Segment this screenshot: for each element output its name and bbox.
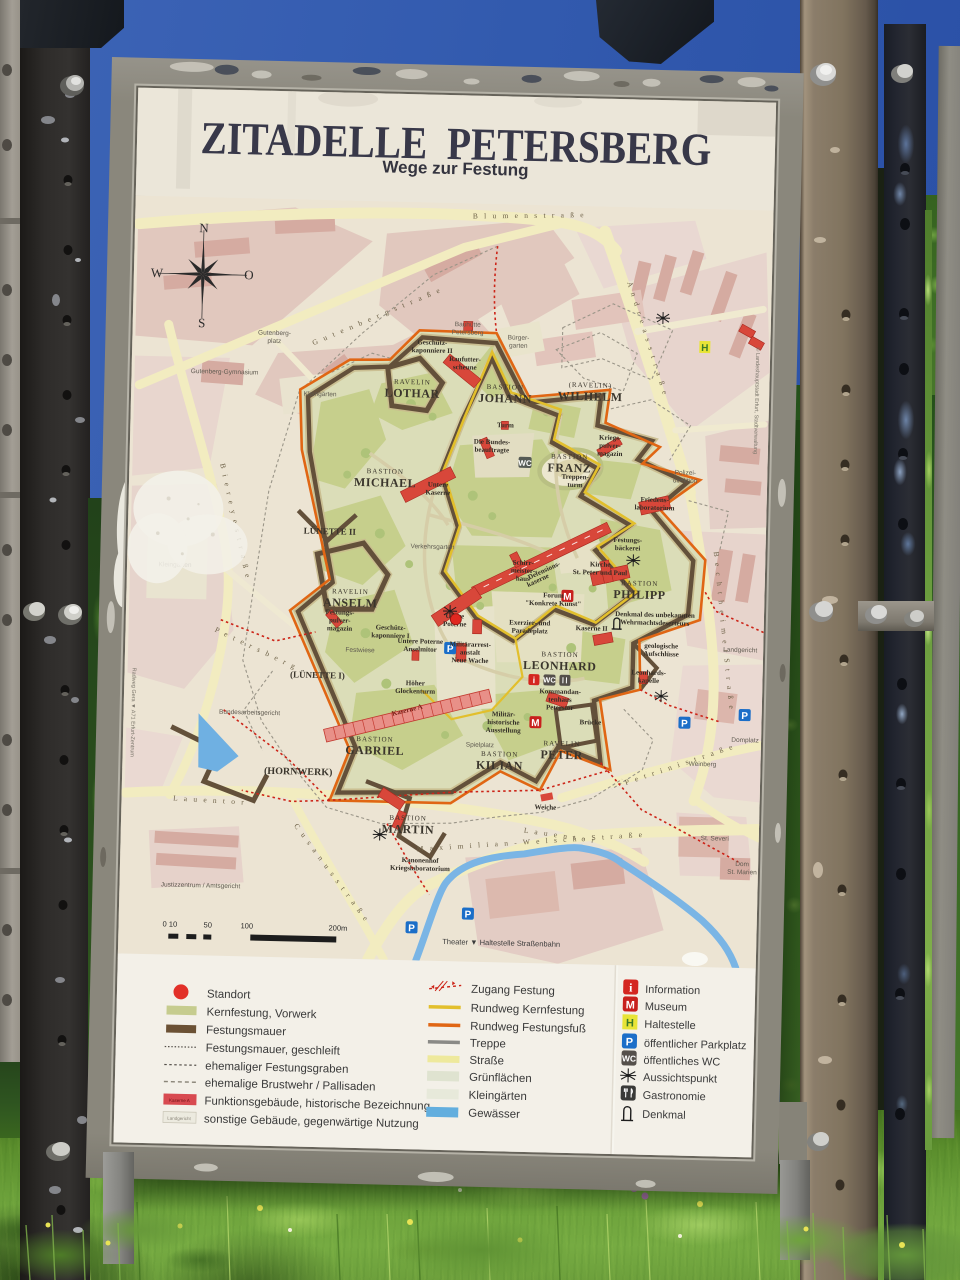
svg-text:Kaserne II: Kaserne II [576,624,609,633]
svg-text:garten: garten [509,342,528,349]
svg-text:Kleingärten: Kleingärten [304,391,337,399]
svg-text:Ausstellung: Ausstellung [486,726,522,735]
svg-text:WC: WC [543,675,556,684]
svg-text:Dom: Dom [735,861,749,868]
svg-text:WC: WC [518,459,532,468]
svg-text:Straße: Straße [469,1055,504,1068]
svg-text:öffentlicher Parkplatz: öffentlicher Parkplatz [644,1038,747,1052]
svg-text:M: M [531,718,540,729]
svg-text:Festungsmauer: Festungsmauer [206,1024,286,1038]
svg-text:ehemaliger Festungsgraben: ehemaliger Festungsgraben [205,1060,348,1075]
svg-text:LOTHAR: LOTHAR [384,386,439,401]
svg-text:P: P [681,719,688,730]
svg-text:KILIAN: KILIAN [476,758,523,773]
svg-text:Museum: Museum [645,1001,687,1014]
svg-text:Aufschlüsse: Aufschlüsse [643,650,679,659]
svg-text:St. Peter und Paul: St. Peter und Paul [573,568,628,577]
svg-text:MARTIN: MARTIN [381,822,434,837]
svg-text:Weinberg: Weinberg [689,761,717,769]
svg-text:Treppe: Treppe [470,1038,506,1051]
svg-text:Peterstor: Peterstor [546,703,574,712]
svg-text:Zugang Festung: Zugang Festung [471,984,555,998]
svg-text:Radweg Gera ▼ A71 Erfurt-Zentr: Radweg Gera ▼ A71 Erfurt-Zentrum [129,668,137,758]
svg-text:magazin: magazin [327,624,353,633]
svg-text:Landgericht: Landgericht [167,1116,191,1122]
svg-text:Rundweg Festungsfuß: Rundweg Festungsfuß [470,1021,586,1036]
svg-text:"Konkrete Kunst": "Konkrete Kunst" [525,599,581,608]
svg-text:200m: 200m [328,923,347,932]
svg-text:Neue Wache: Neue Wache [451,656,488,665]
svg-text:Festwiese: Festwiese [345,647,375,655]
svg-text:Kernfestung, Vorwerk: Kernfestung, Vorwerk [206,1006,316,1021]
svg-text:Standort: Standort [207,988,252,1001]
svg-text:Bundesarbeitsgericht: Bundesarbeitsgericht [219,709,280,717]
svg-text:Haltestelle: Haltestelle [644,1019,696,1032]
svg-text:P: P [408,923,415,934]
svg-text:laboratorium: laboratorium [634,503,674,512]
svg-text:Funktionsgebäude, historische: Funktionsgebäude, historische Bezeichnun… [204,1095,430,1112]
svg-text:GABRIEL: GABRIEL [345,743,404,758]
svg-text:sonstige Gebäude, gegenwärtige: sonstige Gebäude, gegenwärtige Nutzung [204,1113,419,1130]
svg-text:C u s a n u s s t r a ß e: C u s a n u s s t r a ß e [292,822,371,924]
svg-text:P: P [464,910,471,921]
svg-text:P: P [741,711,748,722]
svg-text:W: W [151,265,164,280]
svg-text:öffentliches WC: öffentliches WC [643,1055,720,1069]
svg-text:Bürger-: Bürger- [508,334,530,342]
svg-text:Kaserne A: Kaserne A [169,1098,190,1103]
svg-text:Denkmal: Denkmal [642,1109,686,1122]
svg-text:Rundweg Kernfestung: Rundweg Kernfestung [471,1003,585,1018]
svg-text:H: H [626,1017,634,1029]
svg-text:50: 50 [203,920,212,929]
svg-text:Information: Information [645,984,700,997]
svg-text:LÜNETTE II: LÜNETTE II [304,526,357,537]
svg-text:Landgericht: Landgericht [723,647,757,655]
svg-text:Spielplatz: Spielplatz [466,742,494,750]
svg-text:Theater ▼ Haltestelle Straßenb: Theater ▼ Haltestelle Straßenbahn [442,937,560,949]
svg-text:Brücke: Brücke [579,718,601,727]
svg-text:scheune: scheune [453,363,477,372]
svg-text:i: i [533,675,536,685]
svg-text:beauftragte: beauftragte [474,446,509,455]
svg-text:PHILIPP: PHILIPP [613,587,665,602]
svg-text:Festungsmauer, geschleift: Festungsmauer, geschleift [206,1042,341,1057]
svg-text:kaponniere II: kaponniere II [412,346,453,355]
svg-text:turm: turm [567,481,583,489]
svg-text:magazin: magazin [597,450,623,459]
svg-text:WC: WC [622,1053,636,1063]
svg-text:Domplatz: Domplatz [731,737,759,745]
svg-text:P: P [626,1036,634,1048]
svg-text:P e t e r s b e r g: P e t e r s b e r g [214,625,299,672]
svg-text:Verkehrsgarten: Verkehrsgarten [410,543,455,551]
svg-text:bäckerei: bäckerei [615,544,641,553]
svg-text:Kaserne: Kaserne [425,489,450,498]
svg-text:B l u m e n s t r a ß e: B l u m e n s t r a ß e [473,210,586,220]
svg-text:JOHANN: JOHANN [478,391,532,406]
svg-text:Kriegslaboratorium: Kriegslaboratorium [390,864,450,873]
svg-text:(LÜNETTE I): (LÜNETTE I) [290,669,345,680]
svg-text:0 10: 0 10 [162,919,177,928]
svg-text:Aussichtspunkt: Aussichtspunkt [643,1072,717,1086]
svg-text:platz: platz [267,338,281,345]
svg-text:ehemalige Brustwehr / Pallisad: ehemalige Brustwehr / Pallisaden [205,1077,376,1093]
svg-text:LEONHARD: LEONHARD [523,658,597,674]
svg-text:Kleingärten: Kleingärten [468,1090,526,1103]
svg-text:N: N [199,220,209,235]
svg-text:WILHELM: WILHELM [558,389,623,405]
svg-text:Glockenturm: Glockenturm [395,687,435,696]
svg-text:(HORNWERK): (HORNWERK) [264,766,333,779]
svg-text:Gastronomie: Gastronomie [643,1090,706,1103]
svg-text:M: M [626,999,635,1011]
svg-text:Petersberg: Petersberg [452,329,484,337]
svg-text:Gutenberg-: Gutenberg- [258,330,291,338]
svg-text:H: H [701,343,708,354]
svg-text:PETER: PETER [540,747,583,762]
svg-text:Bauhütte: Bauhütte [455,321,482,329]
svg-text:kapelle: kapelle [638,677,660,686]
svg-text:St. Marien: St. Marien [727,869,757,877]
svg-text:S: S [198,315,206,330]
svg-text:Wehrmachtsdeserteurs: Wehrmachtsdeserteurs [620,618,690,628]
svg-text:direktion: direktion [673,477,698,485]
svg-text:St. Severi: St. Severi [701,835,729,843]
svg-text:MICHAEL: MICHAEL [354,475,416,490]
svg-text:Justizzentrum / Amtsgericht: Justizzentrum / Amtsgericht [161,881,241,890]
svg-text:Polizei-: Polizei- [675,469,696,477]
svg-text:O: O [244,267,254,282]
svg-text:Turm: Turm [497,421,514,429]
svg-text:Paradeplatz: Paradeplatz [511,627,547,636]
svg-text:Anselmitor: Anselmitor [403,645,437,654]
svg-text:Weiche: Weiche [534,803,556,812]
svg-text:100: 100 [240,921,253,930]
svg-text:Grünflächen: Grünflächen [469,1072,532,1085]
svg-text:Gewässer: Gewässer [468,1108,520,1121]
